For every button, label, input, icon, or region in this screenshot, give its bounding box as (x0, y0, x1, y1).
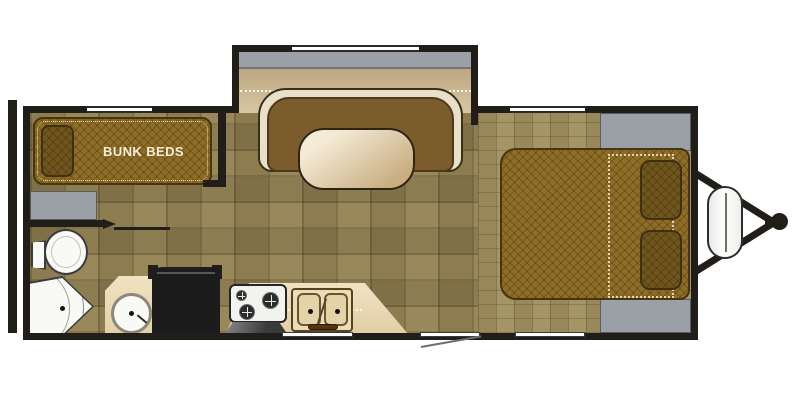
queen-bed (500, 148, 690, 300)
bathroom-wall (27, 220, 106, 227)
sink-drain-right (335, 309, 340, 314)
double-kitchen-sink (291, 288, 353, 332)
burner-right (262, 292, 279, 309)
hitch-coupler-ball (771, 213, 788, 230)
vanity-sink (111, 293, 152, 334)
wall-top-a (23, 106, 87, 113)
bunk-pillow (41, 125, 74, 177)
propane-tank-cover (707, 186, 743, 259)
bed-pillow-top (640, 160, 682, 220)
wardrobe-front (600, 113, 691, 151)
window-bottom-kitchen (282, 332, 353, 337)
slide-wall-top-a (232, 45, 292, 52)
slide-wall-left (232, 45, 239, 113)
range-cooktop (229, 284, 287, 323)
rear-bumper (8, 100, 17, 333)
bunk-partition-hook (203, 180, 226, 187)
sink-drain-left (308, 309, 313, 314)
wardrobe-foot (600, 299, 691, 333)
window-bedroom (510, 106, 585, 113)
refrigerator-top-trim (157, 272, 215, 274)
toilet-bowl (44, 229, 88, 275)
bunk-partition-wall (218, 106, 226, 187)
bunk-beds-label: BUNK BEDS (81, 119, 206, 183)
burner-small (236, 290, 247, 301)
under-bunk-cabinet (30, 191, 97, 220)
shower-drain (60, 306, 65, 311)
propane-cover-seam (725, 193, 727, 252)
slide-out-exterior-strip (239, 52, 471, 69)
bed-pillow-bottom (640, 230, 682, 290)
wall-top-d (585, 106, 698, 113)
wall-top-b (152, 106, 232, 113)
shower-pan (30, 278, 92, 335)
dinette-table (298, 128, 415, 190)
bunk-beds: BUNK BEDS (33, 117, 212, 185)
window-bunk (87, 106, 152, 113)
refrigerator (152, 267, 220, 337)
vanity-drain (129, 311, 134, 316)
slide-wall-right (471, 45, 478, 125)
wall-left (23, 106, 30, 340)
burner-bottom (239, 304, 255, 320)
sink-faucet-bar (308, 324, 338, 330)
wall-top-c (478, 106, 510, 113)
window-slide-out (292, 45, 419, 52)
floorplan-canvas: BUNK BEDS (0, 0, 800, 400)
vanity-faucet (137, 314, 147, 323)
window-bottom-bedroom (515, 332, 585, 337)
corner-shower (28, 276, 94, 337)
wall-bottom (23, 333, 698, 340)
bathroom-pocket-door (114, 227, 170, 230)
sink-basin-right (324, 293, 348, 326)
toilet-bowl-rim (51, 236, 81, 268)
wall-right (691, 106, 698, 340)
slide-wall-top-b (419, 45, 478, 52)
